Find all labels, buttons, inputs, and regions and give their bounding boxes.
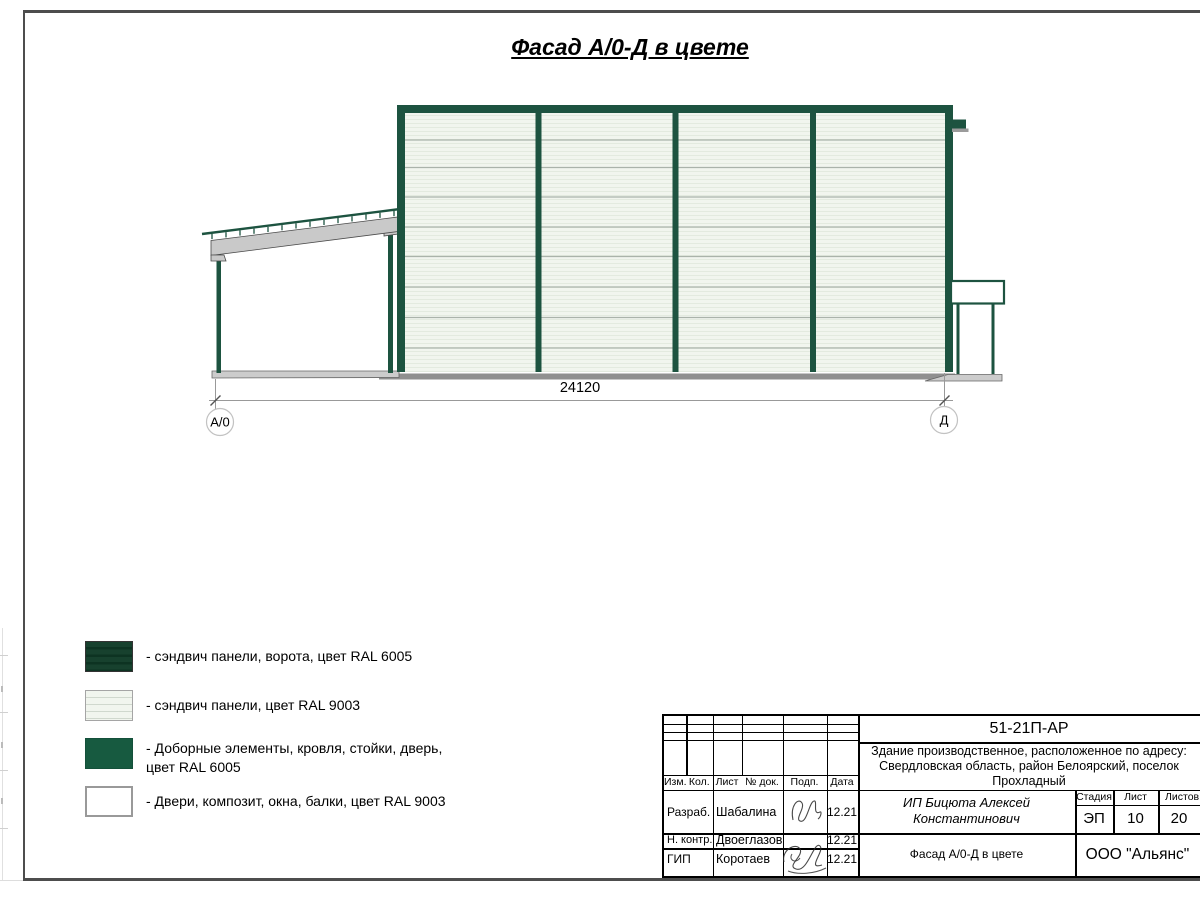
edge-mark [1,742,3,748]
drawing-name: Фасад А/0-Д в цвете [858,833,1075,876]
row-role: Разраб. [667,791,712,833]
grid-line [664,740,858,741]
ground-shadow [379,374,955,380]
client-name: ИП Бицюта Алексей Константинович [858,790,1075,834]
grid-line [664,732,858,733]
legend-swatch-doors-ral9003 [85,786,133,817]
title-block: 51-21П-АР Здание производственное, распо… [662,714,1200,878]
canopy-post-right [388,233,393,373]
legend-label: - Двери, композит, окна, балки, цвет RAL… [146,786,446,817]
stage-value: ЭП [1075,805,1113,833]
sheet-value: 10 [1113,805,1158,833]
header-izm: Изм. [664,775,686,790]
dimension-value: 24120 [560,380,600,396]
entrance-post-right [992,303,995,374]
edge-tick [0,770,8,771]
row-date: 12.21 [827,791,858,833]
grid-line [742,716,744,775]
header-list: Лист [713,775,742,790]
gutter-outlet [950,120,966,129]
entrance-canopy-box [951,281,1004,304]
address-line1: Здание производственное, расположенное п… [858,744,1200,759]
edge-tick [0,712,8,713]
header-kol: Кол. [686,775,713,790]
canopy-post-left [217,252,222,373]
axis-label-right: Д [940,413,949,428]
header-podp: Подп. [783,775,827,790]
entrance-post-left [957,303,960,374]
header-doc: № док. [742,775,783,790]
row-name: Коротаев [716,852,782,867]
legend-label-line1: - Доборные элементы, кровля, стойки, две… [146,739,442,758]
address-line2: Свердловская область, район Белоярский, … [858,759,1200,774]
edge-mark [1,798,3,804]
doc-number: 51-21П-АР [858,716,1200,742]
edge-tick [0,655,8,656]
row-role: ГИП [667,852,712,867]
signature-razrab [785,790,825,832]
axis-label-left: А/0 [210,415,230,430]
row-role: Н. контр. [667,833,713,848]
sheets-value: 20 [1158,805,1200,833]
edge-tick [0,828,8,829]
edge-line [0,880,24,881]
signature-gip [778,834,832,876]
legend-label-line2: цвет RAL 6005 [146,758,442,777]
legend-label: - сэндвич панели, ворота, цвет RAL 6005 [146,641,412,672]
facade-drawing: 24120 А/0 Д [0,0,1200,460]
grid-line [686,716,688,775]
legend-label: - сэндвич панели, цвет RAL 9003 [146,690,360,721]
edge-mark [1,686,3,692]
row-name: Двоеглазов [716,833,782,848]
row-name: Шабалина [716,791,782,833]
company-name: ООО "Альянс" [1075,833,1200,876]
sheets-header: Листов [1158,790,1200,805]
legend-swatch-panel-ral9003 [85,690,133,721]
grid-line [664,724,858,725]
stage-header: Стадия [1075,790,1113,805]
legend-swatch-gate-ral6005 [85,641,133,672]
header-data: Дата [827,775,858,790]
legend-swatch-trim-ral6005 [85,738,133,769]
address-line3: Прохладный [858,774,1200,789]
gutter-shadow [952,129,969,133]
edge-line [2,628,3,881]
canopy-beam [211,217,398,256]
canopy-beam-foot [211,255,226,261]
sheet-header: Лист [1113,790,1158,805]
canopy-ground-slab [212,371,399,378]
legend-label: - Доборные элементы, кровля, стойки, две… [146,739,442,776]
